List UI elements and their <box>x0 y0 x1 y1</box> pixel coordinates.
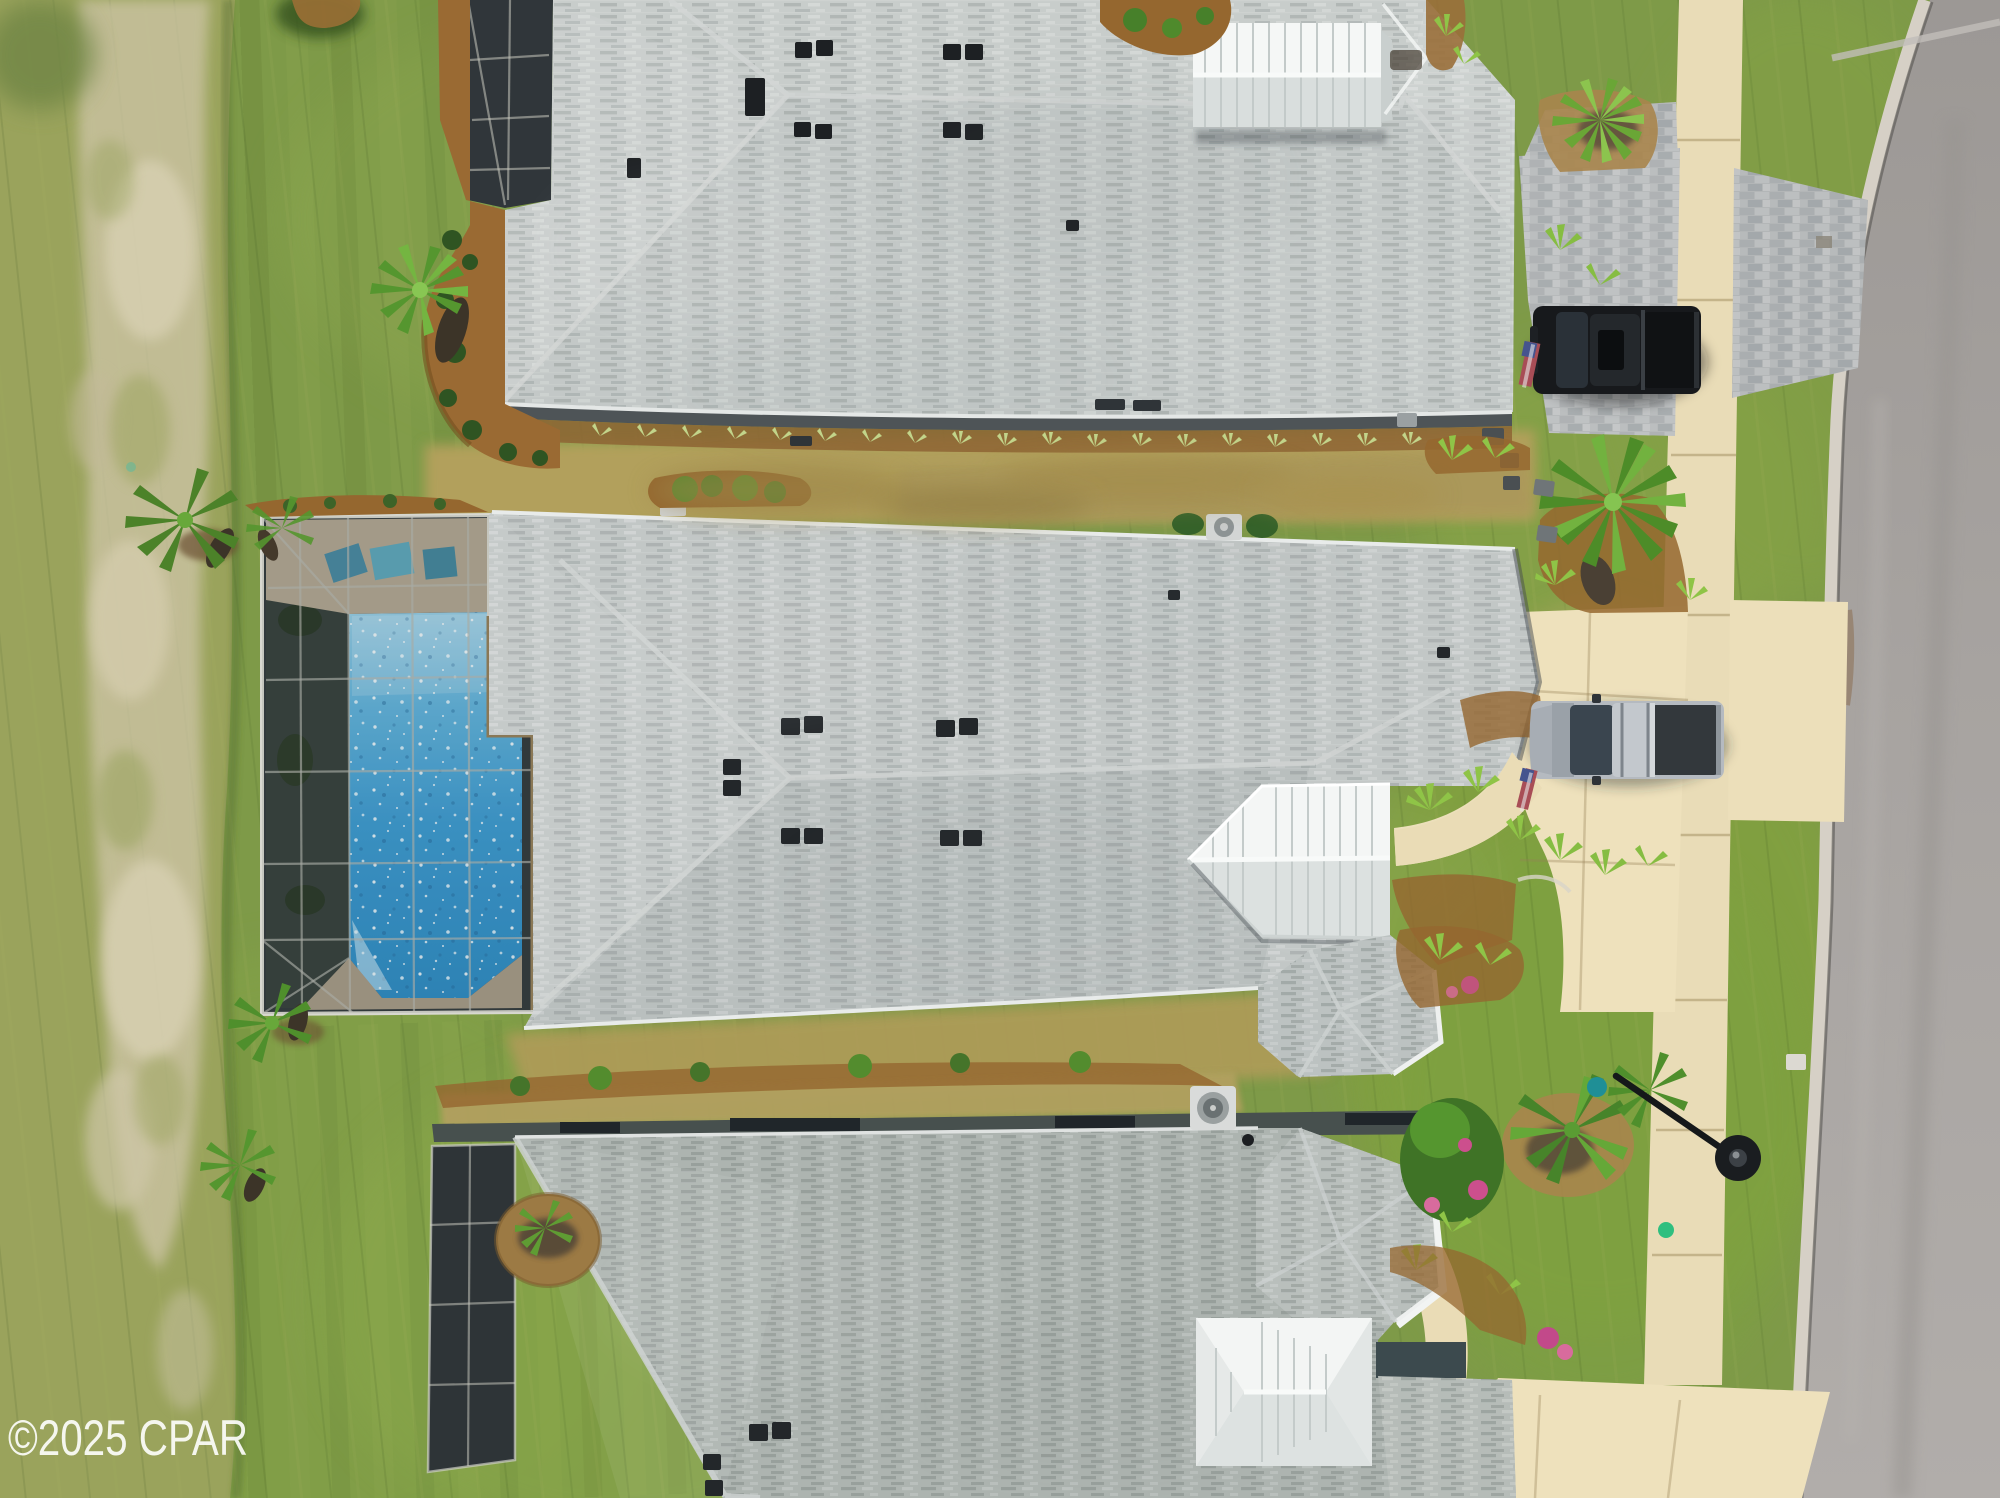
svg-text:©2025 CPAR: ©2025 CPAR <box>8 1410 248 1466</box>
